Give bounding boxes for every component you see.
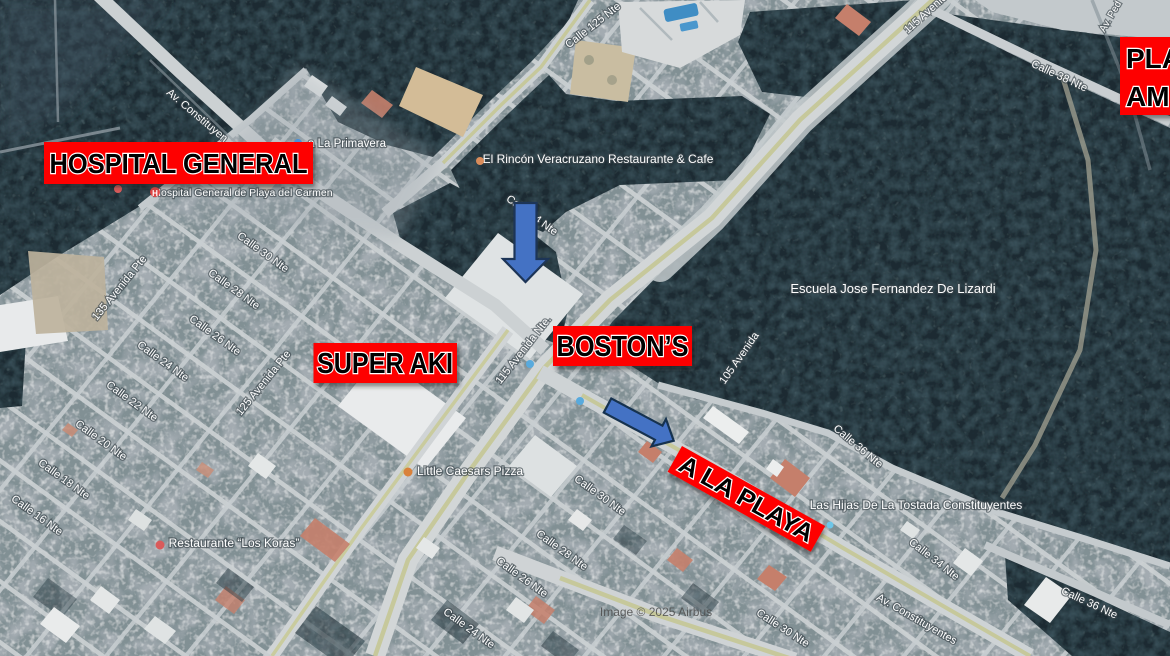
svg-text:Escuela Jose Fernandez De Liza: Escuela Jose Fernandez De Lizardi — [790, 281, 995, 296]
svg-text:El Rincón Veracruzano Restaura: El Rincón Veracruzano Restaurante & Cafe — [483, 152, 714, 166]
svg-text:H: H — [152, 189, 158, 198]
svg-text:Little Caesars Pizza: Little Caesars Pizza — [417, 464, 523, 478]
svg-text:Las Hijas De La Tostada Consti: Las Hijas De La Tostada Constituyentes — [810, 498, 1023, 512]
svg-text:PLA: PLA — [1126, 43, 1170, 74]
svg-text:a La Primavera: a La Primavera — [308, 138, 387, 150]
svg-text:Restaurante “Los Koras”: Restaurante “Los Koras” — [169, 536, 300, 550]
svg-text:Hospital General de Playa del: Hospital General de Playa del Carmen — [153, 187, 332, 199]
svg-text:AM: AM — [1126, 81, 1170, 112]
svg-text:HOSPITAL GENERAL: HOSPITAL GENERAL — [50, 148, 308, 179]
svg-text:BOSTON’S: BOSTON’S — [557, 331, 689, 363]
svg-text:Image © 2025 Airbus: Image © 2025 Airbus — [600, 605, 712, 619]
svg-text:SUPER AKI: SUPER AKI — [317, 348, 453, 380]
